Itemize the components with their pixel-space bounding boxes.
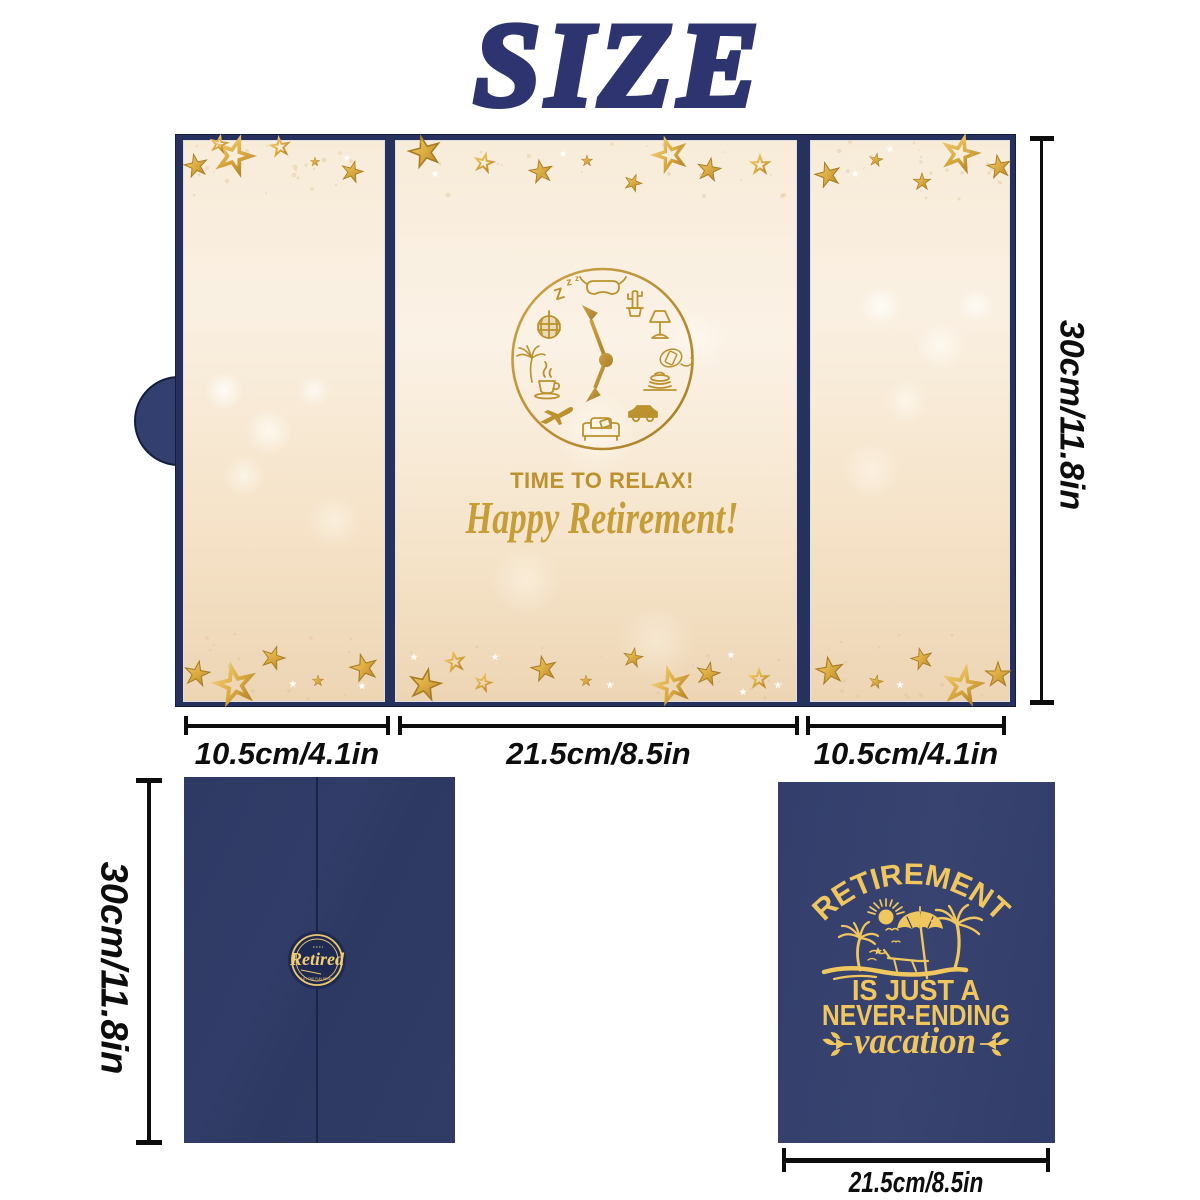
- svg-text:LET THE FUN BEGIN: LET THE FUN BEGIN: [301, 977, 333, 981]
- svg-text:z: z: [575, 274, 579, 283]
- svg-text:Z: Z: [552, 285, 567, 304]
- svg-text:Retired: Retired: [289, 949, 345, 969]
- svg-text:vacation: vacation: [854, 1021, 976, 1062]
- svg-text:z: z: [565, 276, 573, 289]
